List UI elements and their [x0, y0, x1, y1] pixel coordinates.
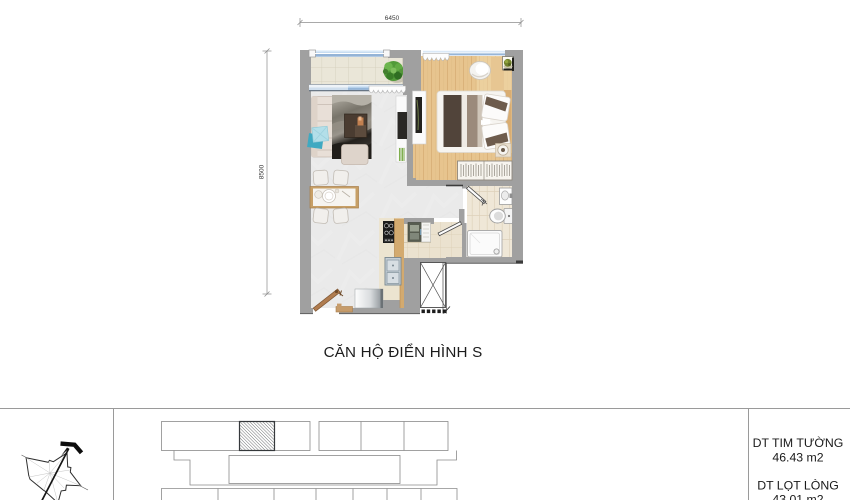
svg-text:46.43 m2: 46.43 m2 — [772, 451, 823, 465]
svg-text:43.01 m2: 43.01 m2 — [772, 493, 823, 500]
svg-text:8500: 8500 — [259, 164, 266, 179]
svg-text:DT LỌT LÒNG: DT LỌT LÒNG — [757, 478, 839, 493]
svg-text:6450: 6450 — [385, 15, 400, 22]
svg-text:DT TIM TƯỜNG: DT TIM TƯỜNG — [753, 435, 844, 450]
svg-text:CĂN HỘ ĐIỂN HÌNH S: CĂN HỘ ĐIỂN HÌNH S — [324, 343, 483, 361]
